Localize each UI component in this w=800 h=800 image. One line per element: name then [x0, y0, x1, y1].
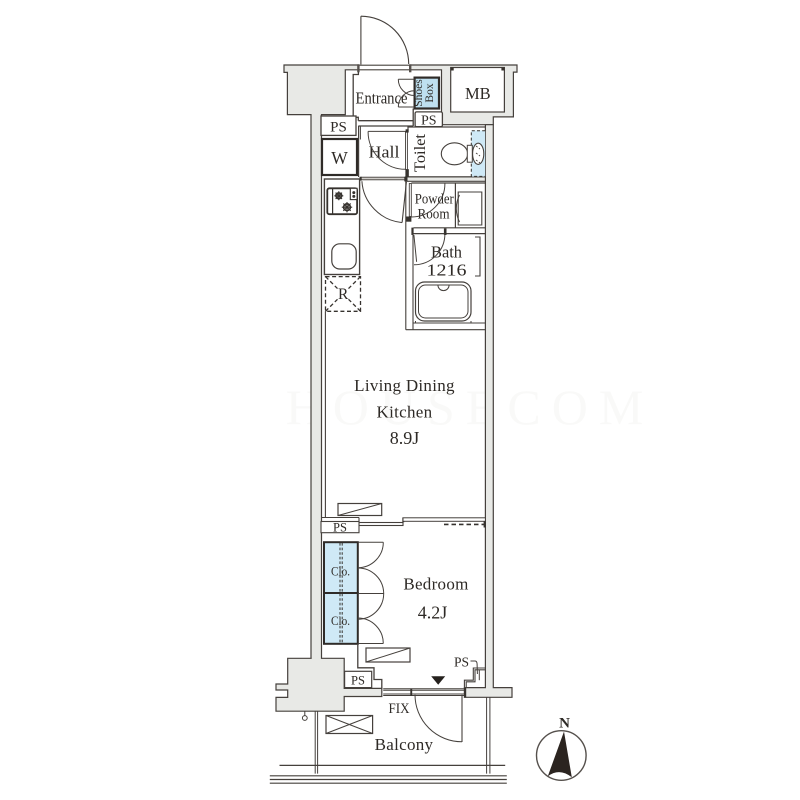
- svg-text:Powder: Powder: [415, 192, 454, 208]
- svg-text:FIX: FIX: [389, 701, 410, 717]
- svg-text:PS: PS: [351, 673, 365, 687]
- svg-text:8.9J: 8.9J: [390, 428, 420, 448]
- svg-text:Toilet: Toilet: [412, 133, 429, 172]
- svg-text:R: R: [338, 286, 349, 303]
- svg-text:Bath: Bath: [431, 243, 463, 262]
- svg-text:Bedroom: Bedroom: [403, 575, 468, 594]
- svg-text:PS: PS: [330, 120, 347, 136]
- svg-text:Box: Box: [424, 83, 436, 102]
- svg-text:1216: 1216: [427, 261, 467, 280]
- svg-text:Entrance: Entrance: [356, 89, 408, 108]
- svg-text:PS: PS: [454, 655, 469, 670]
- svg-text:Hall: Hall: [369, 143, 400, 162]
- svg-text:Balcony: Balcony: [375, 735, 434, 754]
- svg-text:HOUSECOM: HOUSECOM: [286, 379, 655, 435]
- svg-text:Kitchen: Kitchen: [377, 403, 433, 422]
- svg-text:MB: MB: [465, 84, 491, 103]
- svg-text:N: N: [559, 716, 570, 732]
- svg-text:Living Dining: Living Dining: [354, 376, 455, 395]
- svg-text:4.2J: 4.2J: [418, 603, 448, 623]
- svg-text:W: W: [331, 148, 348, 168]
- svg-text:PS: PS: [333, 520, 347, 534]
- svg-text:PS: PS: [421, 113, 437, 128]
